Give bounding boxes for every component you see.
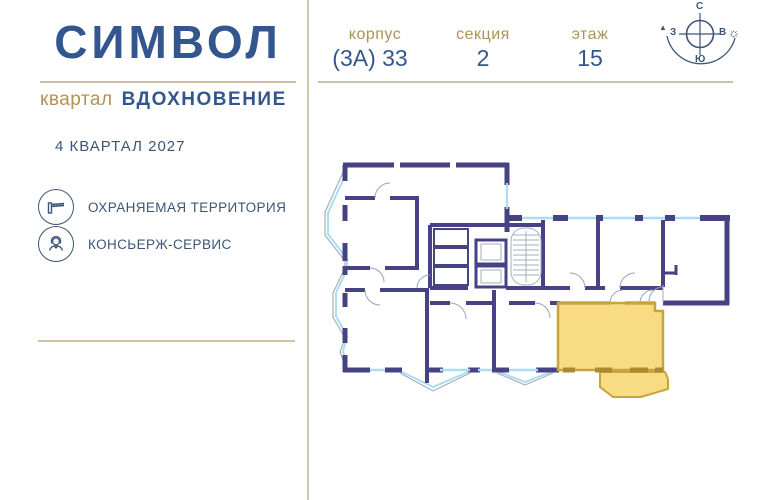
selected-apartment-highlight[interactable] (558, 303, 668, 397)
left-panel-rule (38, 340, 295, 342)
staircase (511, 228, 541, 285)
completion-date: 4 КВАРТАЛ 2027 (55, 138, 185, 155)
logo-underline (40, 81, 296, 83)
sun-icon: ☼ (728, 25, 740, 40)
meta-corpus-label: корпус (320, 26, 430, 44)
feature-concierge: КОНСЬЕРЖ-СЕРВИС (38, 226, 232, 262)
compass-east-label: В (719, 27, 726, 38)
feature-label: КОНСЬЕРЖ-СЕРВИС (88, 237, 232, 252)
compass-west-label: З (670, 27, 676, 38)
subtitle-name: ВДОХНОВЕНИЕ (122, 89, 287, 110)
elevator-shafts (476, 240, 506, 287)
listing-floorplan-card: СИМВОЛ кварталВДОХНОВЕНИЕ 4 КВАРТАЛ 2027… (0, 0, 770, 500)
meta-floor-value: 15 (535, 45, 645, 72)
meta-floor-label: этаж (535, 26, 645, 44)
vertical-divider (307, 0, 309, 500)
meta-section-value: 2 (428, 45, 538, 72)
meta-corpus-value: (3А) 33 (315, 45, 425, 72)
logo-symbol: СИМВОЛ (40, 16, 296, 69)
feature-guarded-territory: ОХРАНЯЕМАЯ ТЕРРИТОРИЯ (38, 189, 286, 225)
meta-rule (318, 81, 733, 83)
compass-rose: С Ю З В ☼ ▲ (655, 4, 755, 76)
logo-subtitle: кварталВДОХНОВЕНИЕ (40, 89, 320, 112)
meta-section-label: секция (428, 26, 538, 44)
concierge-icon (38, 226, 74, 262)
subtitle-prefix: квартал (40, 89, 113, 110)
compass-north-label: С (696, 1, 703, 12)
barrier-icon (38, 189, 74, 225)
west-marker-icon: ▲ (659, 23, 667, 32)
floor-plan[interactable] (310, 135, 770, 445)
compass-south-label: Ю (695, 54, 705, 65)
feature-label: ОХРАНЯЕМАЯ ТЕРРИТОРИЯ (88, 200, 286, 215)
